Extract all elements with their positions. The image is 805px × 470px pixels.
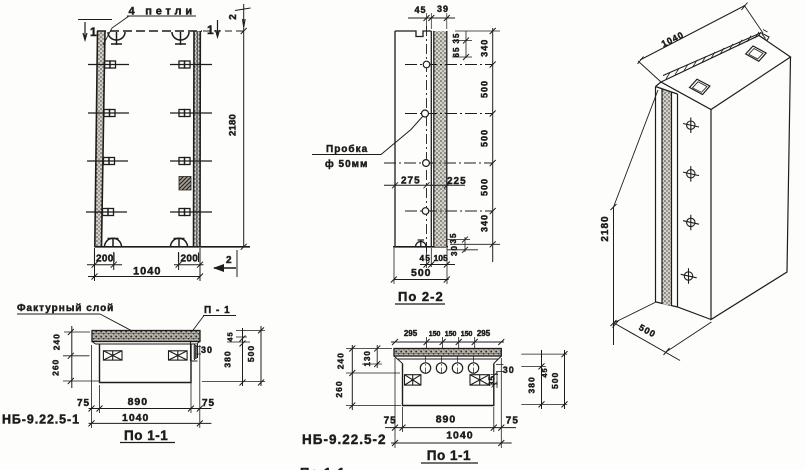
svg-text:75: 75	[77, 398, 90, 409]
svg-text:НБ-9.22.5-2: НБ-9.22.5-2	[302, 432, 387, 447]
svg-text:1: 1	[207, 23, 215, 37]
svg-text:Пробка: Пробка	[326, 143, 368, 155]
svg-text:105: 105	[434, 253, 448, 263]
svg-text:ф 50мм: ф 50мм	[325, 158, 368, 170]
svg-text:65: 65	[452, 47, 461, 58]
svg-text:По 1-1: По 1-1	[300, 465, 346, 470]
svg-text:130: 130	[363, 350, 372, 366]
svg-text:35: 35	[452, 33, 461, 44]
svg-text:890: 890	[436, 414, 457, 426]
svg-text:НБ-9.22.5-1: НБ-9.22.5-1	[2, 413, 80, 427]
svg-text:75: 75	[202, 398, 215, 409]
svg-text:200: 200	[181, 254, 199, 265]
svg-text:По 1-1: По 1-1	[427, 448, 471, 463]
svg-text:500: 500	[550, 372, 560, 389]
svg-text:45: 45	[540, 367, 549, 377]
svg-text:75: 75	[506, 415, 519, 426]
svg-text:500: 500	[480, 178, 490, 196]
svg-text:500: 500	[480, 80, 490, 98]
svg-text:380: 380	[223, 350, 233, 367]
svg-text:30: 30	[201, 345, 213, 355]
svg-text:2: 2	[228, 13, 239, 20]
svg-text:2180: 2180	[228, 114, 239, 136]
svg-text:45: 45	[420, 253, 431, 263]
svg-text:1: 1	[90, 25, 98, 39]
svg-text:1040: 1040	[133, 266, 161, 278]
svg-text:35: 35	[449, 233, 458, 244]
svg-text:39: 39	[437, 4, 449, 14]
svg-text:380: 380	[527, 376, 537, 393]
svg-text:Фактурный слой: Фактурный слой	[17, 303, 114, 314]
svg-text:2180: 2180	[600, 215, 611, 241]
svg-text:340: 340	[480, 214, 490, 232]
svg-text:500: 500	[480, 129, 490, 147]
svg-text:35: 35	[488, 375, 497, 386]
svg-text:295: 295	[477, 329, 491, 338]
svg-text:200: 200	[96, 254, 114, 265]
svg-text:150: 150	[445, 331, 457, 338]
svg-text:1040: 1040	[446, 430, 473, 442]
svg-text:1040: 1040	[122, 412, 149, 424]
svg-text:45: 45	[226, 331, 235, 341]
svg-text:150: 150	[461, 331, 473, 338]
svg-text:45: 45	[415, 5, 427, 15]
svg-text:75: 75	[384, 415, 397, 426]
svg-text:По 1-1: По 1-1	[124, 428, 168, 443]
svg-text:340: 340	[480, 39, 490, 57]
svg-text:240: 240	[335, 352, 345, 369]
svg-text:30: 30	[450, 245, 459, 256]
svg-text:30: 30	[503, 365, 515, 375]
svg-text:500: 500	[411, 267, 432, 279]
svg-text:260: 260	[334, 380, 344, 397]
svg-text:П - 1: П - 1	[204, 305, 231, 316]
svg-text:240: 240	[52, 333, 62, 350]
svg-text:890: 890	[128, 396, 149, 408]
svg-text:2: 2	[226, 255, 233, 266]
svg-text:260: 260	[51, 359, 61, 376]
svg-text:225: 225	[447, 176, 467, 187]
svg-text:150: 150	[429, 331, 441, 338]
svg-text:295: 295	[404, 329, 418, 338]
svg-text:По 2-2: По 2-2	[398, 289, 444, 304]
svg-text:500: 500	[246, 345, 256, 362]
svg-text:275: 275	[401, 176, 421, 187]
